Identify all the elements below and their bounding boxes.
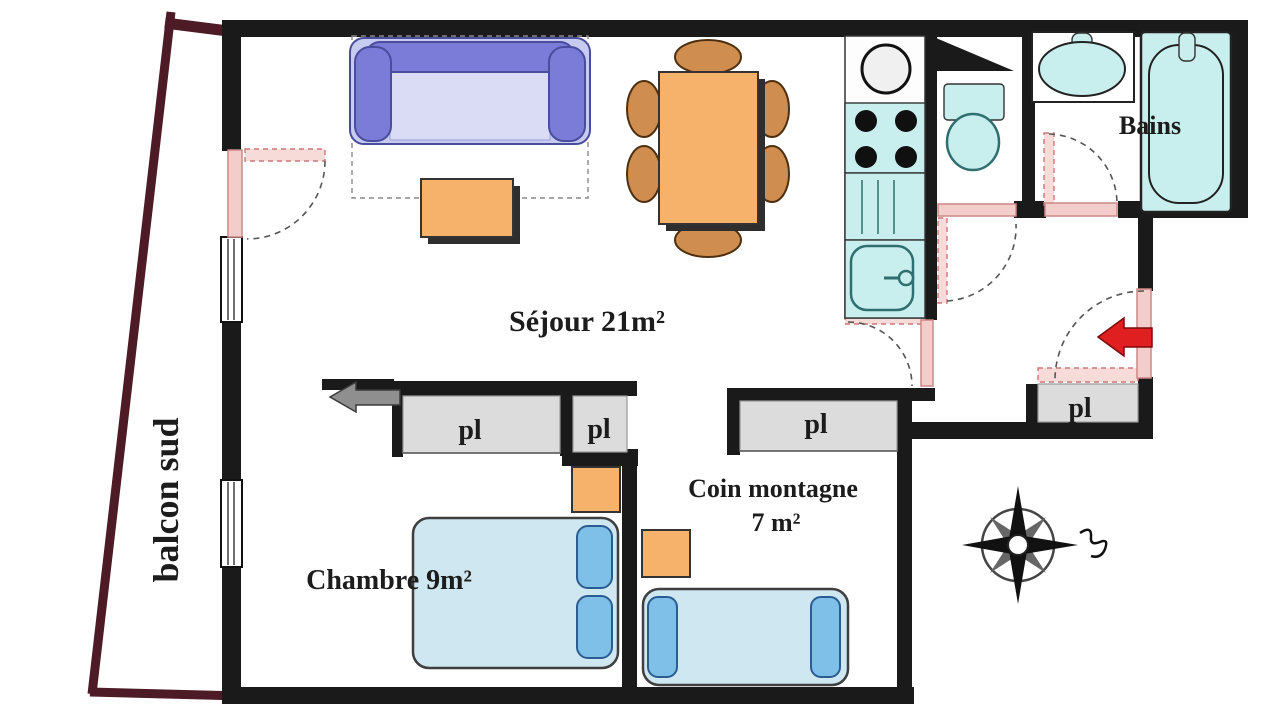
balcony-wall-bottom — [90, 692, 242, 696]
closet-label-4: pl — [1068, 393, 1092, 424]
wall-sejour-chambre — [322, 379, 394, 390]
coin-montagne: Coin montagne 7 m² — [642, 474, 858, 685]
balcony: balcon sud — [90, 12, 242, 696]
wall-right-bathroom — [1231, 20, 1248, 218]
wall-bottom-main — [222, 687, 914, 704]
wall-hall-bottom — [912, 422, 1153, 439]
compass-rose-icon — [962, 486, 1106, 604]
sofa-back-cushion — [366, 42, 574, 72]
stove-burner — [895, 110, 917, 132]
nightstand — [572, 467, 620, 512]
balcony-door-opening — [245, 149, 325, 161]
wall-entry-right-lower — [1138, 377, 1153, 439]
dining-table — [659, 72, 758, 224]
compass-center — [1008, 535, 1028, 555]
wall-coin-right — [897, 400, 912, 702]
toilet-bowl — [947, 114, 999, 170]
nightstand — [642, 530, 690, 577]
wc-corner-triangle — [936, 38, 1014, 71]
sejour-label: Séjour 21m² — [509, 305, 665, 338]
bathroom-door-swing-arc — [1049, 134, 1117, 204]
dining-chair — [675, 40, 741, 74]
bed-pillow — [577, 596, 612, 658]
wall-closet-top — [392, 381, 637, 396]
closet-label-1: pl — [458, 415, 482, 446]
floor-plan-drawing: balcon sud — [0, 0, 1280, 720]
kitchen-door-swing-arc — [848, 322, 912, 386]
bathroom-label: Bains — [1119, 111, 1181, 140]
coin-montagne-label: Coin montagne — [688, 474, 858, 503]
bathroom-door-sill — [1045, 203, 1117, 216]
bathtub-faucet — [1179, 33, 1195, 61]
bed-pillow — [648, 597, 677, 677]
wall-chambre-coin-divider — [622, 449, 637, 702]
window-left-2 — [221, 480, 242, 567]
coin-montagne-area-label: 7 m² — [752, 508, 801, 537]
bed-pillow — [577, 526, 612, 588]
sofa-armrest-right — [549, 47, 585, 141]
dining-chair — [627, 146, 661, 202]
wall-closet-divider — [560, 394, 573, 456]
wall-left-middle — [222, 322, 241, 480]
wc-door-swing-arc — [947, 224, 1016, 301]
sink-faucet-knob — [899, 271, 913, 285]
wall-kitchen-right — [925, 20, 937, 320]
wc-door-leaf — [938, 218, 947, 303]
coffee-table — [421, 179, 520, 244]
window-left-1 — [221, 237, 242, 322]
wall-left-top — [222, 20, 241, 151]
balcony-wall-top — [165, 23, 228, 31]
sofa-seat — [390, 66, 550, 140]
coffee-table-top — [421, 179, 513, 237]
balcony-label: balcon sud — [146, 417, 186, 582]
sofa-armrest-left — [355, 47, 391, 141]
closet-label-2: pl — [587, 414, 611, 445]
dining-chair — [627, 81, 661, 137]
compass-east-ornament — [1080, 530, 1106, 557]
wall-coin-closet-jamb — [727, 388, 740, 455]
washbasin — [1039, 42, 1125, 96]
bed-pillow — [811, 597, 840, 677]
stove-burner — [855, 146, 877, 168]
sofa — [350, 38, 590, 144]
sejour-furniture — [350, 36, 789, 257]
stove-burner — [855, 110, 877, 132]
bathroom: Bains — [1032, 32, 1231, 212]
bathroom-door-leaf — [1044, 133, 1054, 205]
dining-set — [627, 40, 789, 257]
balcony-door-swing-arc — [247, 161, 325, 239]
floor-plan: balcon sud — [0, 0, 1280, 720]
wall-entry-closet-jamb — [1026, 384, 1038, 424]
entry-closet-front-line — [1038, 368, 1138, 382]
wc — [944, 84, 1004, 170]
wc-door-sill — [938, 204, 1016, 216]
kitchen — [845, 36, 925, 318]
wall-coin-closet-top — [727, 388, 935, 401]
kitchen-counter — [845, 173, 925, 240]
chambre-label: Chambre 9m² — [306, 565, 472, 596]
wall-left-bottom — [222, 566, 241, 702]
stove-burner — [895, 146, 917, 168]
wall-entry-right-upper — [1138, 217, 1153, 291]
balcony-door-leaf — [228, 150, 242, 237]
washing-machine-icon — [862, 45, 910, 93]
closet-label-3: pl — [804, 409, 828, 440]
kitchen-door-leaf — [921, 320, 933, 386]
balcony-wall-slanted — [92, 12, 171, 694]
